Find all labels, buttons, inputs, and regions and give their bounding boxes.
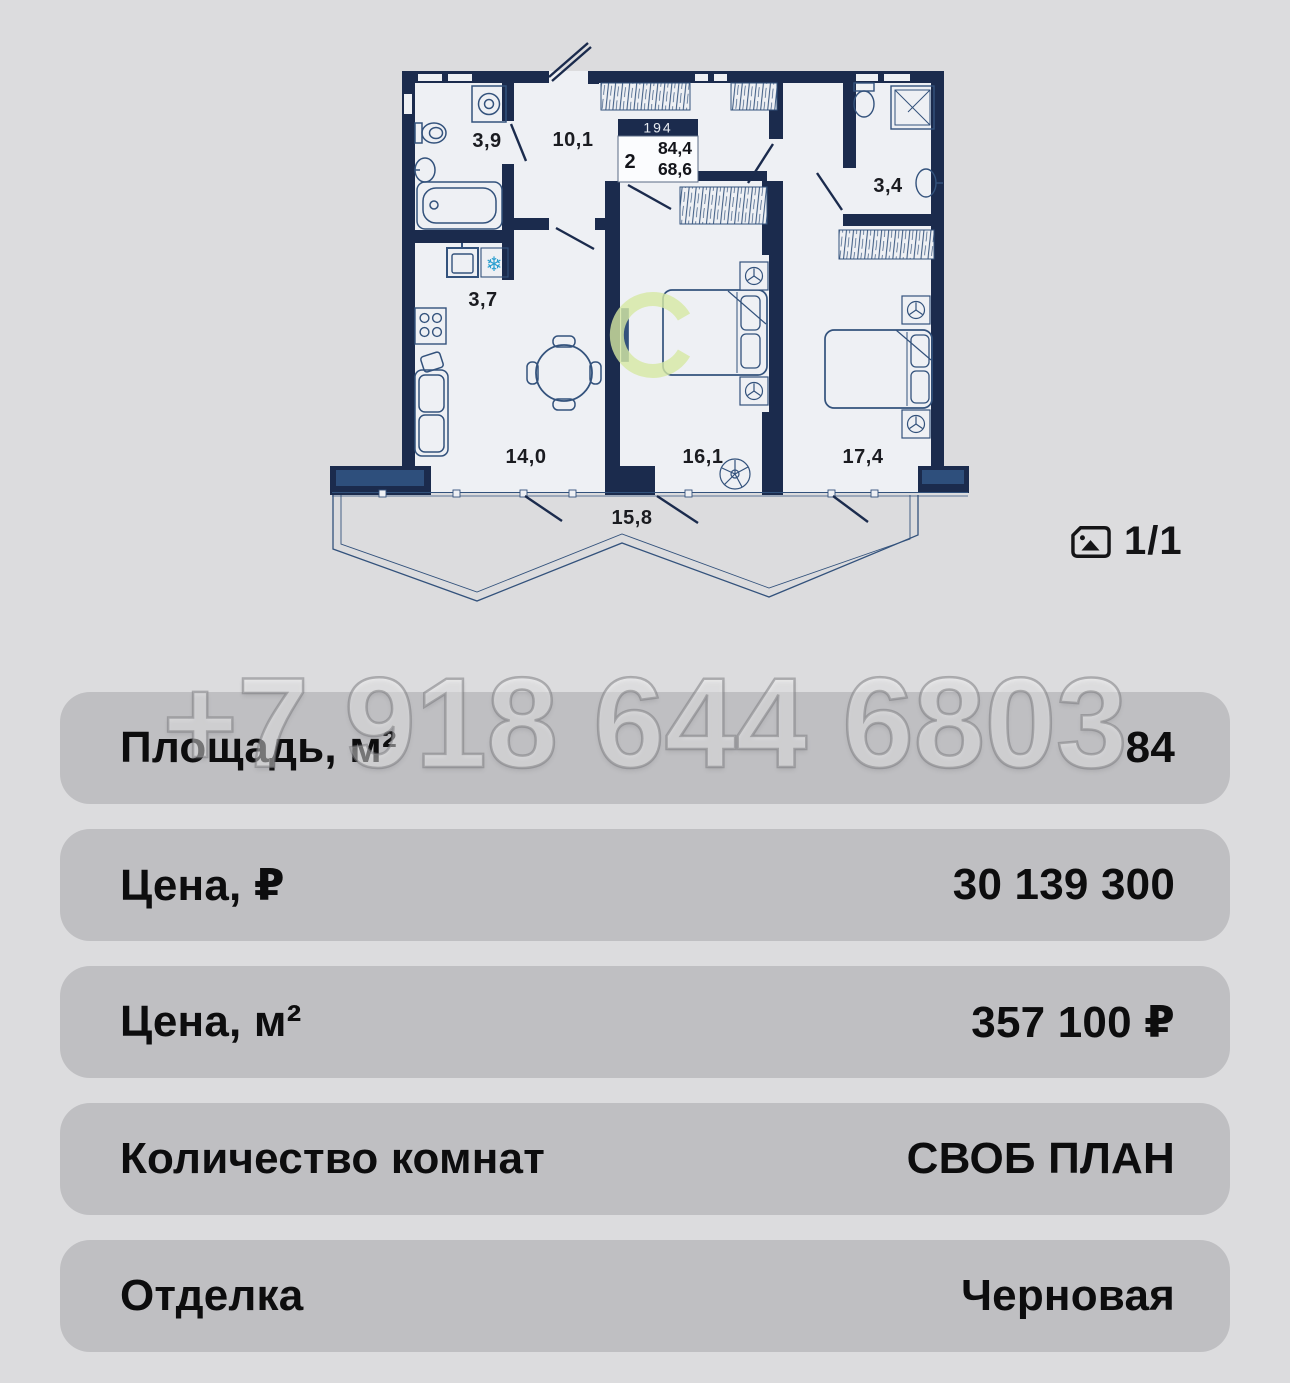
balcony-doors [525, 496, 868, 523]
floor-plan: ❄ [330, 40, 970, 665]
snowflake-icon: ❄ [486, 254, 503, 276]
row-price-per-m2: Цена, м² 357 100 ₽ [60, 966, 1230, 1078]
row-finishing-value: Черновая [961, 1271, 1175, 1321]
area-total: 84,4 [658, 138, 692, 158]
room-area-label-bedroom1: 16,1 [683, 446, 724, 468]
area-living: 68,6 [658, 159, 692, 179]
row-price-label: Цена, ₽ [120, 860, 285, 911]
room-area-label-bedroom2: 17,4 [843, 446, 884, 468]
row-rooms-label: Количество комнат [120, 1134, 545, 1184]
row-price-value: 30 139 300 [953, 860, 1175, 910]
row-price-per-m2-label: Цена, м² [120, 997, 301, 1047]
row-finishing-label: Отделка [120, 1271, 303, 1321]
row-area-label: Площадь, м² [120, 723, 397, 773]
row-area: Площадь, м² 84 [60, 692, 1230, 804]
row-price-per-m2-value: 357 100 ₽ [971, 997, 1175, 1048]
photo-icon [1070, 523, 1112, 561]
photo-counter[interactable]: 1/1 [1070, 519, 1183, 564]
room-area-label-living: 14,0 [506, 446, 547, 468]
unit-info-box: 194 2 84,4 68,6 [618, 119, 698, 182]
row-price: Цена, ₽ 30 139 300 [60, 829, 1230, 941]
photo-counter-label: 1/1 [1124, 519, 1183, 564]
row-rooms: Количество комнат СВОБ ПЛАН [60, 1103, 1230, 1215]
listing-page: { "colors": { "page_bg": "#dcdcde", "row… [0, 0, 1290, 1383]
room-area-label-kitchen: 3,7 [468, 289, 497, 311]
room-area-label-bathroom: 3,9 [472, 130, 501, 152]
row-finishing: Отделка Черновая [60, 1240, 1230, 1352]
details-list: Площадь, м² 84 Цена, ₽ 30 139 300 Цена, … [60, 692, 1230, 1377]
room-area-label-bathroom2: 3,4 [873, 175, 903, 197]
room-area-label-balcony: 15,8 [612, 507, 653, 529]
row-rooms-value: СВОБ ПЛАН [907, 1134, 1175, 1184]
unit-number: 194 [643, 120, 672, 136]
room-area-label-hallway: 10,1 [553, 129, 594, 151]
rooms-count: 2 [624, 151, 635, 173]
floor-plan-drawing: ❄ [330, 40, 970, 665]
row-area-value: 84 [1126, 723, 1175, 773]
